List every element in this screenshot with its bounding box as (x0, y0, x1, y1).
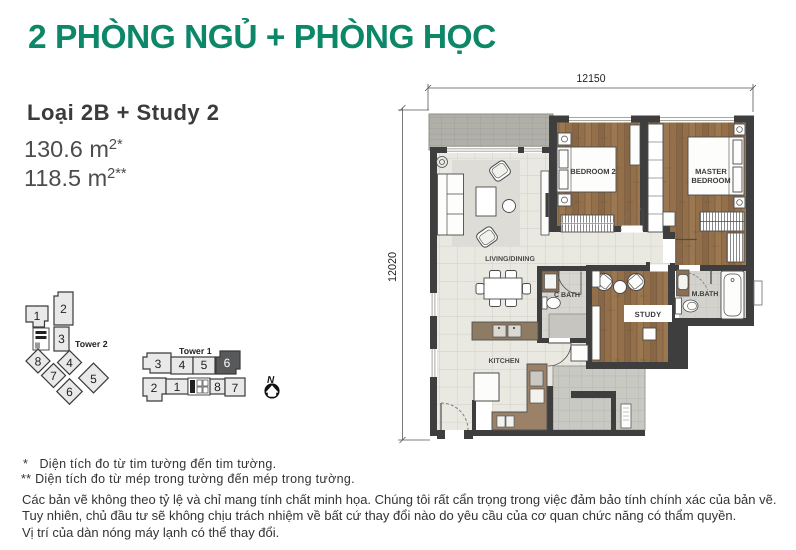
svg-text:7: 7 (232, 381, 239, 395)
svg-text:MASTER: MASTER (695, 167, 727, 176)
svg-text:LIVING/DINING: LIVING/DINING (485, 255, 535, 263)
svg-text:5: 5 (90, 372, 97, 386)
svg-text:3: 3 (58, 332, 65, 346)
svg-text:8: 8 (214, 380, 221, 394)
svg-text:N: N (267, 375, 275, 386)
svg-text:12150: 12150 (577, 73, 606, 85)
svg-text:2: 2 (151, 381, 158, 395)
svg-text:3: 3 (155, 357, 162, 371)
svg-text:4: 4 (66, 356, 73, 370)
svg-text:Tower 2: Tower 2 (75, 339, 108, 349)
svg-text:6: 6 (66, 385, 73, 399)
svg-text:M.BATH: M.BATH (692, 291, 719, 298)
svg-text:1: 1 (174, 380, 181, 394)
svg-text:7: 7 (50, 369, 57, 383)
svg-text:STUDY: STUDY (635, 310, 662, 319)
svg-text:8: 8 (35, 355, 42, 369)
svg-text:4: 4 (179, 358, 186, 372)
svg-text:KITCHEN: KITCHEN (488, 358, 519, 365)
svg-text:C BATH: C BATH (554, 292, 580, 299)
svg-text:Tower 1: Tower 1 (179, 346, 212, 356)
svg-text:2: 2 (60, 302, 67, 316)
svg-text:1: 1 (34, 309, 41, 323)
svg-text:BEDROOM: BEDROOM (691, 176, 730, 185)
svg-text:6: 6 (224, 356, 231, 370)
svg-text:BEDROOM 2: BEDROOM 2 (570, 167, 615, 176)
svg-text:12020: 12020 (387, 252, 399, 282)
svg-text:5: 5 (201, 358, 208, 372)
